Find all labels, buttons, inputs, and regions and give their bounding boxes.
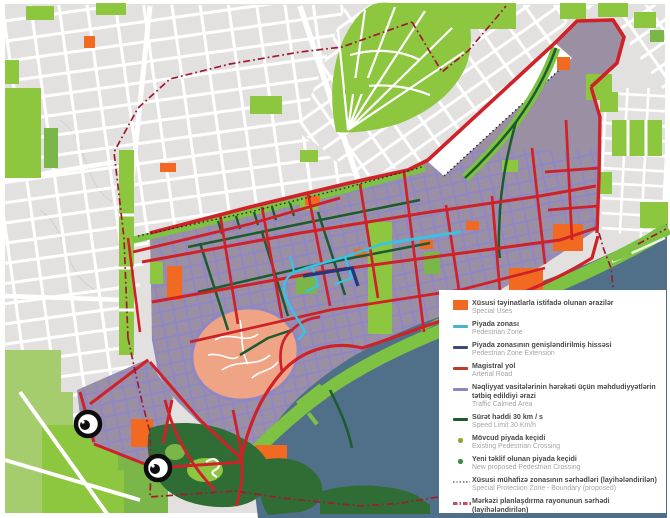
legend-item: Yeni təklif olunan piyada keçidi New pro… [445, 455, 660, 472]
legend-label-az: Sürət həddi 30 km / s [472, 413, 660, 422]
legend-symbol-cell [445, 341, 472, 349]
legend-label-az: Mövcud piyada keçidi [472, 434, 660, 443]
legend-label-az: Mərkəzi planlaşdırma rayonunun sərhədi (… [472, 497, 660, 513]
legend-symbol-cell [445, 497, 472, 505]
legend-label-az: Piyada zonası [472, 320, 660, 329]
legend-item: Piyada zonasının genişləndirilmiş hissəs… [445, 341, 660, 358]
legend-symbol [453, 388, 468, 391]
legend-symbol [453, 346, 468, 349]
legend-symbol [453, 300, 468, 310]
legend-label-az: Piyada zonasının genişləndirilmiş hissəs… [472, 341, 660, 350]
legend-symbol-cell [445, 476, 472, 483]
legend-symbol [453, 367, 468, 370]
legend-label-az: Magistral yol [472, 362, 660, 371]
legend-item: Piyada zonası Pedestrian Zone [445, 320, 660, 337]
legend-symbol [458, 459, 463, 464]
legend-symbol-cell [445, 299, 472, 310]
legend-label-en: Existing Pedestrian Crossing [472, 443, 660, 451]
legend-symbol-cell [445, 413, 472, 421]
legend-symbol [453, 418, 468, 421]
legend-label-az: Xüsusi mühafizə zonasının sərhədləri (la… [472, 476, 660, 485]
legend-symbol-cell [445, 320, 472, 328]
legend-symbol [453, 502, 471, 505]
legend-label-en: Pedestrian Zone [472, 329, 660, 337]
map-legend: Xüsusi təyinatlarla istifadə olunan əraz… [439, 290, 666, 513]
legend-label-en: Special Uses [472, 308, 660, 316]
legend-label-az: Xüsusi təyinatlarla istifadə olunan əraz… [472, 299, 660, 308]
legend-label-az: Yeni təklif olunan piyada keçidi [472, 455, 660, 464]
legend-item: Xüsusi təyinatlarla istifadə olunan əraz… [445, 299, 660, 316]
legend-symbol-cell [445, 455, 472, 464]
legend-label-en: Arterial Road [472, 371, 660, 379]
legend-symbol-cell [445, 362, 472, 370]
legend-item: Xüsusi mühafizə zonasının sərhədləri (la… [445, 476, 660, 493]
legend-label-en: Speed Limit 30 Km/h [472, 422, 660, 430]
central-axis-park [368, 222, 392, 334]
copyright-watermark-icon [76, 412, 100, 436]
map-canvas: Xüsusi təyinatlarla istifadə olunan əraz… [0, 0, 670, 518]
legend-item: Mövcud piyada keçidi Existing Pedestrian… [445, 434, 660, 451]
legend-symbol [453, 325, 468, 328]
legend-label-en: Special Protection Zone - Boundary (prop… [472, 485, 660, 493]
legend-symbol-cell [445, 434, 472, 443]
legend-label-en: Pedestrian Zone Extension [472, 350, 660, 358]
legend-label-az: Nəqliyyat vasitələrinin hərəkəti üçün mə… [472, 383, 660, 400]
legend-label-en: New proposed Pedestrian Crossing [472, 464, 660, 472]
legend-item: Sürət həddi 30 km / s Speed Limit 30 Km/… [445, 413, 660, 430]
west-park-strip [119, 150, 134, 355]
legend-item: Nəqliyyat vasitələrinin hərəkəti üçün mə… [445, 383, 660, 409]
legend-label-en: Traffic Calmed Area [472, 401, 660, 409]
copyright-watermark-icon [146, 456, 170, 480]
legend-symbol-cell [445, 383, 472, 391]
legend-item: Magistral yol Arterial Road [445, 362, 660, 379]
legend-symbol [453, 481, 470, 483]
legend-item: Mərkəzi planlaşdırma rayonunun sərhədi (… [445, 497, 660, 513]
legend-symbol [458, 438, 463, 443]
